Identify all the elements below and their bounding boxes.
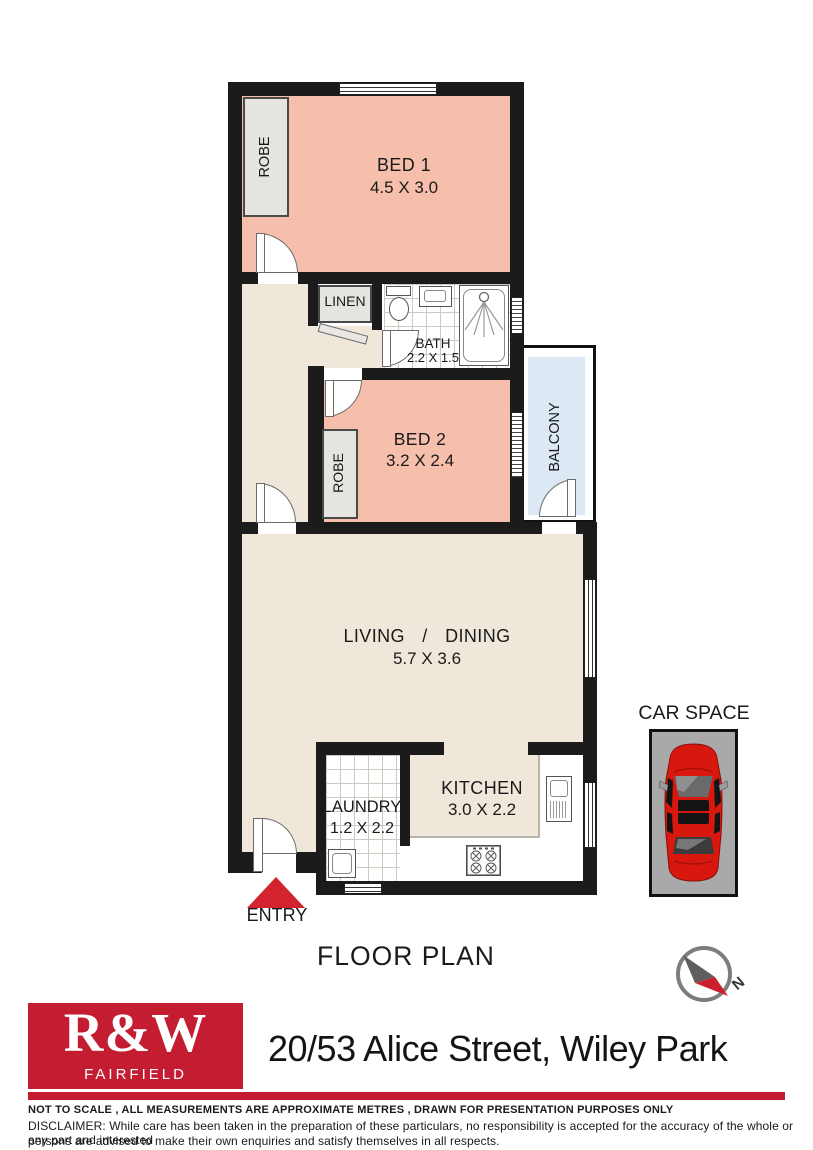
stove-icon: [466, 845, 501, 876]
wall-linen-right: [372, 284, 382, 330]
vanity-basin-icon: [424, 290, 446, 302]
laundry-dims: 1.2 X 2.2: [302, 820, 422, 838]
agency-logo-brand: R&W: [28, 1001, 243, 1064]
opening-hall-door: [258, 522, 296, 534]
opening-entry-door: [262, 852, 296, 873]
living-window-icon: [584, 579, 596, 678]
laundry-tub-bowl-icon: [332, 853, 352, 874]
opening-bed2-door: [324, 368, 362, 380]
wall-living-top-a: [240, 522, 258, 534]
kitchen-label: KITCHEN: [412, 779, 552, 799]
bed1-label: BED 1: [324, 156, 484, 176]
bed1-window-icon: [339, 83, 437, 95]
bed2-dims: 3.2 X 2.4: [340, 452, 500, 471]
wall-linen-left: [308, 284, 318, 326]
balcony-door-leaf: [567, 479, 576, 517]
living-label: LIVING / DINING: [297, 627, 557, 647]
toilet-tank-icon: [386, 286, 411, 296]
property-address: 20/53 Alice Street, Wiley Park: [268, 1028, 727, 1070]
laundry-label: LAUNDRY: [302, 798, 422, 816]
bed2-door-leaf: [325, 380, 334, 417]
bed1-door-leaf: [256, 233, 265, 273]
wall-bed2-top: [362, 368, 510, 380]
entry-door-leaf: [253, 818, 263, 872]
bed1-dims: 4.5 X 3.0: [324, 179, 484, 198]
floor-plan-page: BED 1 4.5 X 3.0 BED 2 3.2 X 2.4 BATH 2.2…: [0, 0, 813, 1150]
opening-bed1-door: [258, 272, 298, 284]
footer-divider: [28, 1092, 785, 1100]
entry-arrow-icon: [247, 877, 305, 908]
shower-spray-icon: [460, 290, 510, 342]
living-dims: 5.7 X 3.6: [297, 650, 557, 669]
entry-label: ENTRY: [232, 906, 322, 926]
opening-balcony-door: [542, 522, 576, 534]
bath-door-leaf: [382, 330, 391, 367]
car-space-label: CAR SPACE: [624, 703, 764, 724]
balcony-label: BALCONY: [548, 387, 564, 487]
compass-icon: [670, 940, 742, 1012]
car-icon: [658, 740, 729, 885]
bed2-window-icon: [511, 412, 523, 478]
bed1-robe-label: ROBE: [258, 122, 274, 192]
wall-bed1-bottom-b: [298, 272, 510, 284]
opening-kitchen: [444, 742, 528, 755]
wall-bed1-bottom-a: [242, 272, 258, 284]
bed2-label: BED 2: [340, 430, 500, 449]
disclaimer-line-2: persons are advised to make their own en…: [28, 1134, 500, 1148]
kitchen-sink-bowl-icon: [550, 780, 568, 797]
scale-note: NOT TO SCALE , ALL MEASUREMENTS ARE APPR…: [28, 1104, 673, 1116]
agency-logo-office: FAIRFIELD: [28, 1066, 243, 1083]
linen-label: LINEN: [318, 294, 372, 309]
wall-living-top-c: [576, 522, 586, 534]
bath-dims: 2.2 X 1.5: [393, 351, 473, 365]
wall-kitchen-top-a: [316, 742, 444, 755]
bed2-robe-label: ROBE: [331, 438, 347, 508]
toilet-bowl-icon: [389, 297, 409, 321]
wall-left: [228, 82, 242, 873]
bath-window-icon: [511, 297, 523, 334]
kitchen-sink-drainer-icon: [550, 801, 568, 818]
kitchen-dims: 3.0 X 2.2: [412, 801, 552, 820]
agency-logo: R&W FAIRFIELD: [28, 1003, 243, 1089]
wall-kitchen-top-b: [528, 742, 586, 755]
kitchen-window-icon: [584, 782, 596, 848]
wall-living-top-b: [296, 522, 542, 534]
page-title: FLOOR PLAN: [281, 942, 531, 971]
laundry-window-icon: [344, 883, 382, 894]
hall-door-leaf: [256, 483, 265, 523]
